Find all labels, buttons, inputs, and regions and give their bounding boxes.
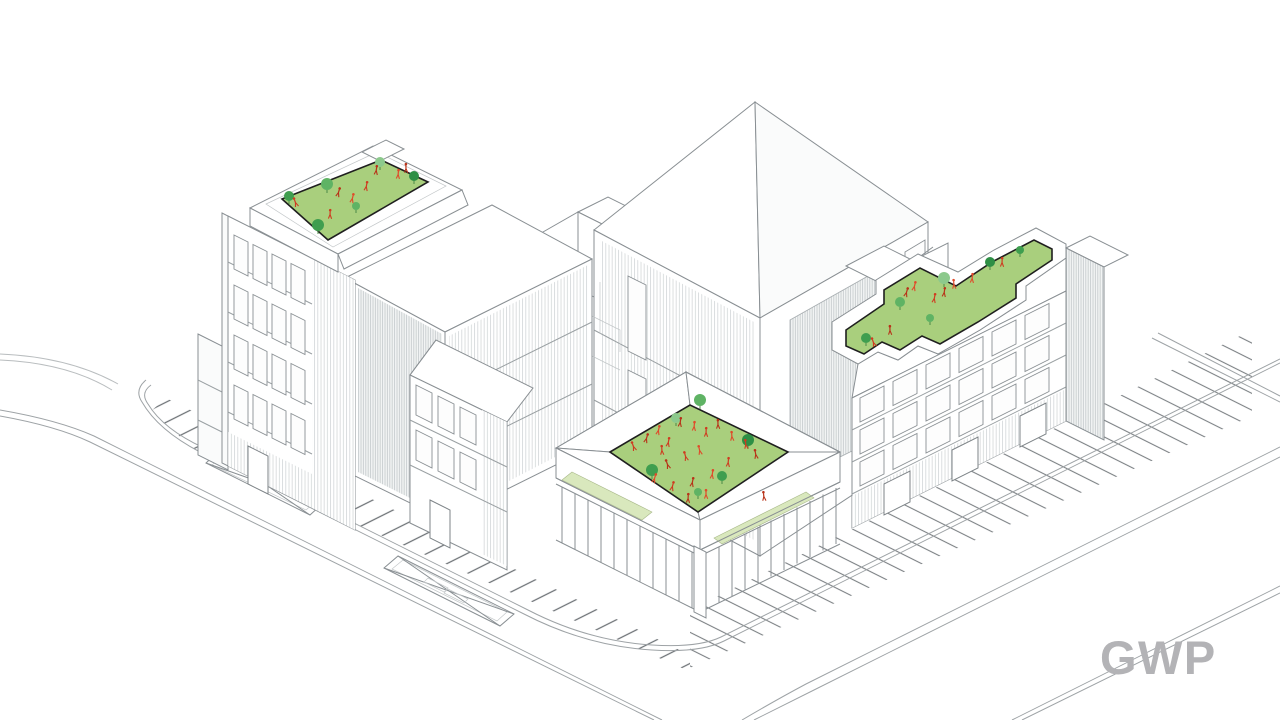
left-tower-return (222, 213, 228, 466)
corner-pier (694, 546, 706, 618)
street-corner-curve (0, 360, 112, 390)
site-axonometric-drawing: GWP (0, 0, 1280, 720)
street-corner-curve (0, 354, 118, 384)
axonometric-scene-svg (0, 0, 1280, 720)
gwp-logo: GWP (1100, 630, 1217, 685)
